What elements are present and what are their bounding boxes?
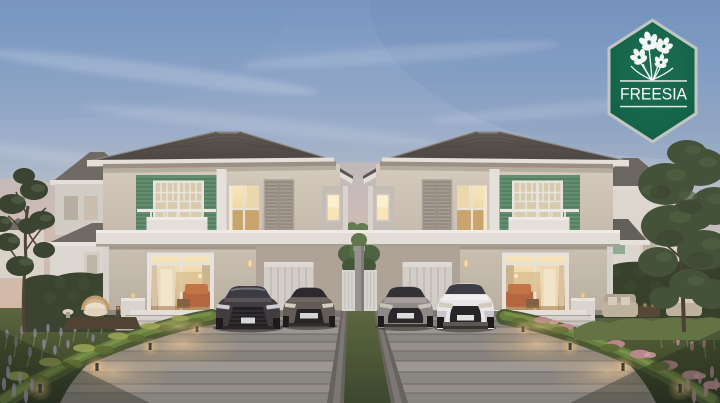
svg-text:FREESIA: FREESIA (620, 85, 688, 104)
